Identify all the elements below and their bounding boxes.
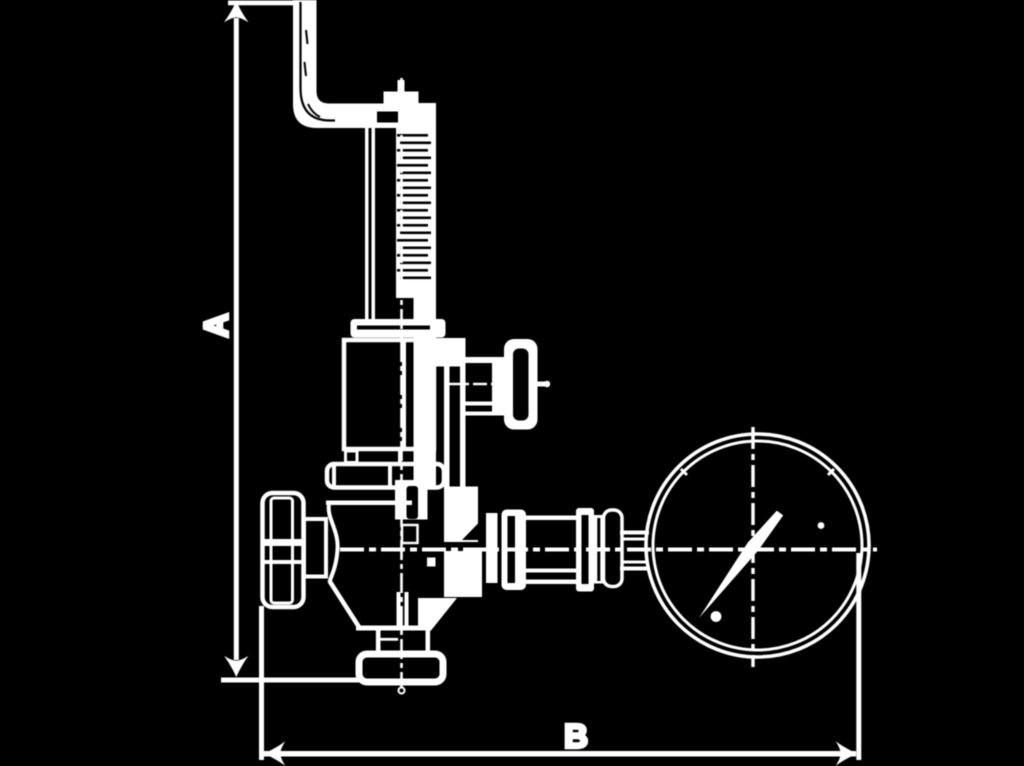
svg-text:B: B — [564, 717, 588, 754]
svg-text:A: A — [198, 314, 235, 338]
